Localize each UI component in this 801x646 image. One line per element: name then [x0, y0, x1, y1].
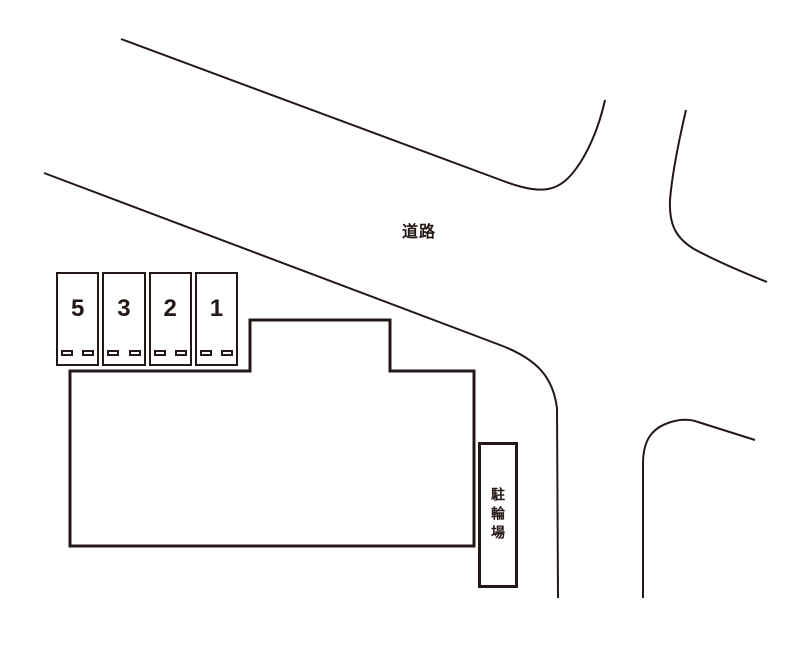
wheel-stop-row	[104, 350, 143, 356]
wheel-stop	[221, 350, 233, 356]
parking-stall-row: 5 3 2 1	[56, 272, 238, 366]
bicycle-parking-area: 駐輪場	[478, 442, 518, 588]
stall-number: 1	[210, 297, 223, 321]
wheel-stop	[200, 350, 212, 356]
wheel-stop-row	[151, 350, 190, 356]
road-label: 道路	[402, 218, 436, 242]
stall-number: 2	[163, 297, 176, 321]
road-edge-top-right-corner	[670, 110, 767, 282]
road-edge-upper-left-corner	[121, 39, 605, 190]
wheel-stop	[175, 350, 187, 356]
wheel-stop	[61, 350, 73, 356]
parking-stall-3: 3	[102, 272, 145, 366]
stall-number: 3	[117, 297, 130, 321]
wheel-stop	[82, 350, 94, 356]
bicycle-parking-label: 駐輪場	[491, 487, 505, 544]
wheel-stop-row	[58, 350, 97, 356]
road-edge-bottom-right-corner	[643, 420, 755, 598]
wheel-stop	[107, 350, 119, 356]
parking-stall-1: 1	[195, 272, 238, 366]
parking-stall-5: 5	[56, 272, 99, 366]
wheel-stop	[154, 350, 166, 356]
wheel-stop	[129, 350, 141, 356]
parking-stall-2: 2	[149, 272, 192, 366]
wheel-stop-row	[197, 350, 236, 356]
stall-number: 5	[71, 297, 84, 321]
site-map: 道路 5 3 2 1	[0, 0, 801, 646]
